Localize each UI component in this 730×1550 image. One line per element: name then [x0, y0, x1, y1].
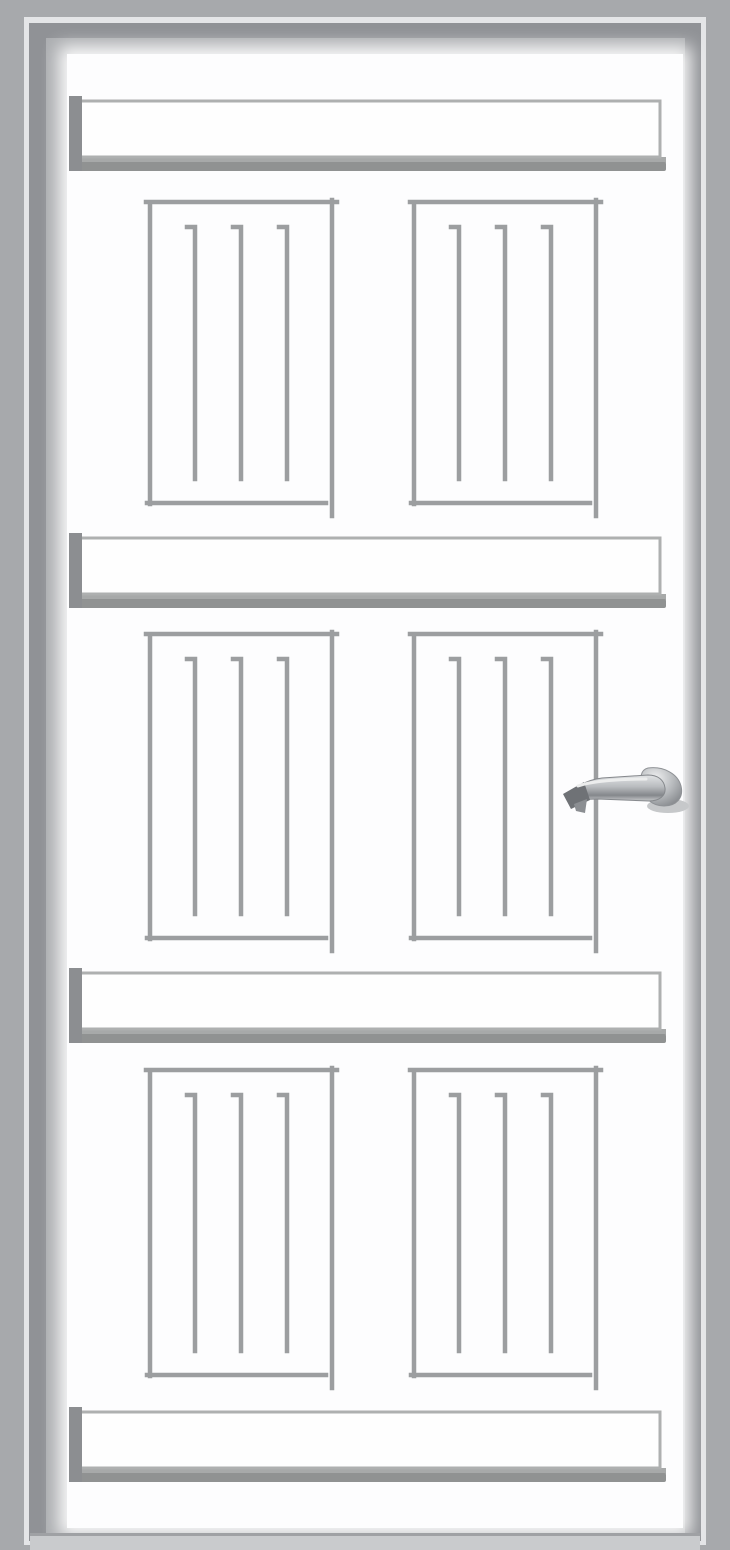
- door-rail: [69, 1407, 666, 1482]
- panel-groove: [187, 227, 195, 479]
- panel-groove: [187, 659, 195, 914]
- panel-groove: [233, 1095, 241, 1351]
- door-rail: [69, 96, 666, 171]
- panel-groove: [279, 659, 287, 914]
- panel-groove: [279, 227, 287, 479]
- panel-groove: [543, 659, 551, 914]
- door-panel: [146, 632, 337, 951]
- panel-groove: [543, 227, 551, 479]
- panel-groove: [451, 659, 459, 914]
- panel-groove: [451, 227, 459, 479]
- door-panel: [410, 200, 601, 516]
- panel-groove: [543, 1095, 551, 1351]
- panel-groove: [497, 1095, 505, 1351]
- door-details: [0, 0, 730, 1550]
- panel-groove: [233, 227, 241, 479]
- panel-groove: [187, 1095, 195, 1351]
- door-handle: [563, 768, 689, 813]
- door-product-image: { "scene": { "description": "Front view …: [0, 0, 730, 1550]
- panel-groove: [497, 659, 505, 914]
- door-panel: [146, 1068, 337, 1388]
- panel-groove: [451, 1095, 459, 1351]
- door-panel: [146, 200, 337, 516]
- panel-groove: [497, 227, 505, 479]
- door-rail: [69, 533, 666, 608]
- panel-groove: [279, 1095, 287, 1351]
- panel-groove: [233, 659, 241, 914]
- door-panel: [410, 1068, 601, 1388]
- door-rail: [69, 968, 666, 1043]
- door-panels: [146, 200, 601, 1388]
